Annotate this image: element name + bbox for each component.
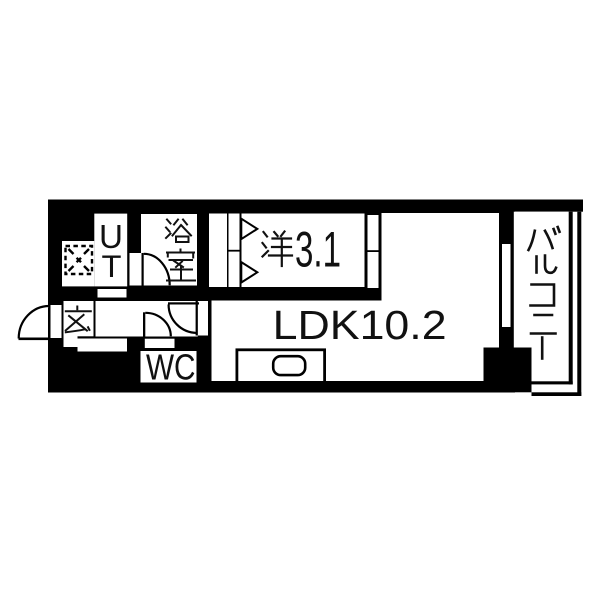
svg-text:3.1: 3.1 xyxy=(295,222,341,278)
svg-text:WC: WC xyxy=(146,346,196,387)
svg-text:T: T xyxy=(102,248,122,284)
svg-text:LDK10.2: LDK10.2 xyxy=(273,302,447,348)
